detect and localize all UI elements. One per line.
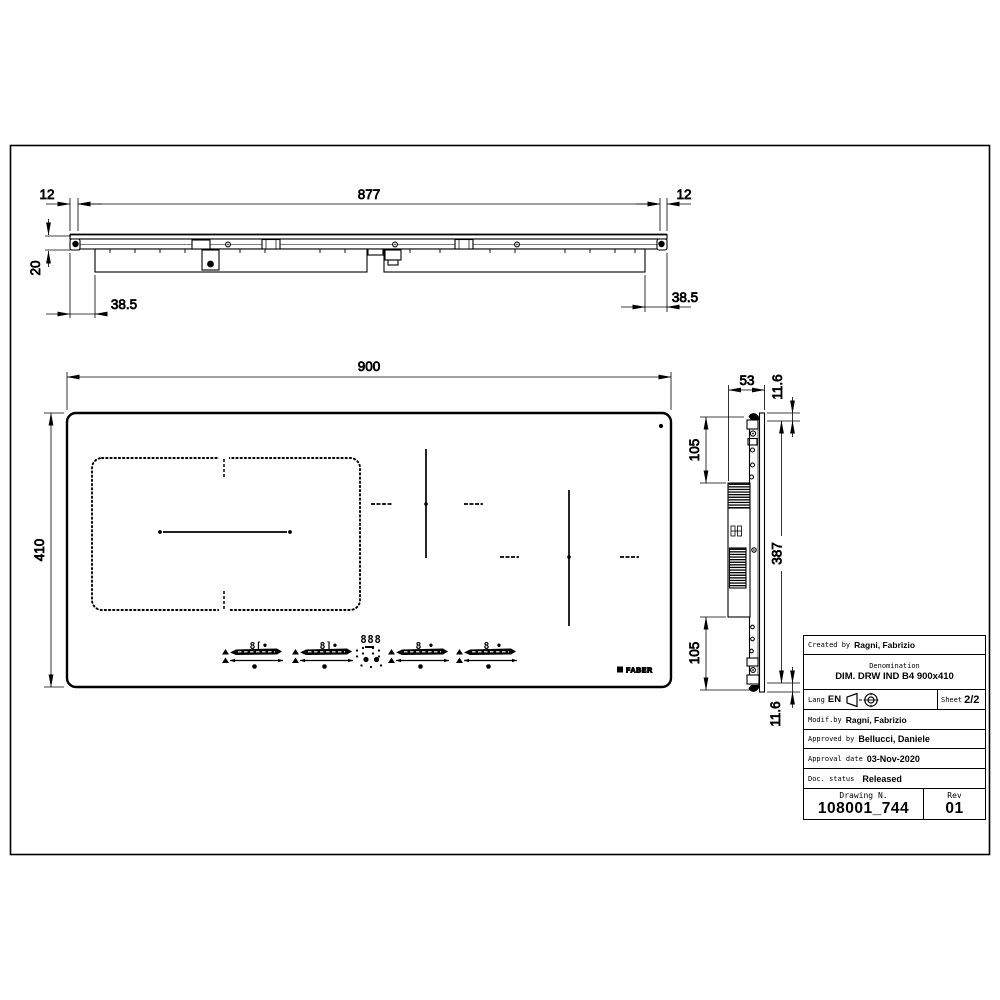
created-by-value: Ragni, Fabrizio	[854, 640, 915, 650]
created-by-label: Created by	[808, 641, 850, 649]
title-row-lang-sheet: Lang EN Sheet 2/2	[804, 689, 985, 709]
timer-display: 888	[360, 634, 381, 646]
side-view	[728, 413, 765, 692]
sheet-value: 2/2	[964, 694, 979, 706]
dim-plan-height: 410	[32, 539, 47, 562]
title-row-drawing-number: Drawing N. 108001_744 Rev 01	[804, 788, 985, 819]
title-row-denomination: Denomination DIM. DRW IND B4 900x410	[804, 654, 985, 689]
power-indicator-dot	[659, 424, 663, 428]
dim-front-glass-width: 877	[358, 187, 381, 202]
drawing-number-value: 108001_744	[818, 800, 909, 818]
front-view	[70, 235, 667, 273]
projection-symbol-icon	[844, 692, 884, 708]
title-row-doc-status: Doc. status Released	[804, 768, 985, 788]
cad-drawing: 12 877 12 20 38.5 38.5	[0, 0, 1000, 1000]
denomination-label: Denomination	[869, 662, 920, 670]
approval-date-value: 03-Nov-2020	[867, 754, 920, 764]
lang-cell: Lang EN	[804, 690, 937, 709]
rev-label: Rev	[947, 791, 961, 800]
dim-front-left-overhang: 12	[39, 187, 54, 202]
denomination-value: DIM. DRW IND B4 900x410	[835, 671, 954, 682]
dim-side-bottom-inset: 105	[687, 642, 702, 665]
sheet-cell: Sheet 2/2	[937, 690, 985, 709]
title-block: Created by Ragni, Fabrizio Denomination …	[803, 635, 986, 820]
drawing-number-cell: Drawing N. 108001_744	[804, 789, 924, 819]
dim-side-bottom-glass: 11.6	[768, 701, 783, 726]
approved-by-value: Bellucci, Daniele	[858, 734, 930, 744]
doc-status-label: Doc. status	[808, 775, 854, 783]
dim-side-top-glass: 11.6	[770, 374, 785, 399]
dim-front-right-overhang: 12	[676, 187, 691, 202]
dim-side-top-inset: 105	[687, 439, 702, 462]
drawing-number-label: Drawing N.	[839, 791, 887, 800]
faber-logo-text: FABER	[626, 668, 653, 675]
dim-side-body-height: 387	[770, 542, 785, 565]
sheet-label: Sheet	[941, 696, 962, 704]
lang-label: Lang	[808, 696, 825, 704]
dim-front-right-inset: 38.5	[672, 290, 698, 305]
title-row-modif-by: Modif.by Ragni, Fabrizio	[804, 709, 985, 729]
dim-front-left-inset: 38.5	[111, 297, 137, 312]
modif-by-value: Ragni, Fabrizio	[846, 715, 907, 725]
lang-value: EN	[828, 694, 841, 705]
dim-front-height: 20	[28, 260, 43, 275]
rev-cell: Rev 01	[924, 789, 985, 819]
approval-date-label: Approval date	[808, 755, 863, 763]
title-row-approval-date: Approval date 03-Nov-2020	[804, 748, 985, 768]
doc-status-value: Released	[862, 774, 902, 784]
modif-by-label: Modif.by	[808, 716, 842, 724]
title-row-created-by: Created by Ragni, Fabrizio	[804, 636, 985, 654]
dim-side-depth: 53	[739, 373, 754, 388]
drawing-sheet: 12 877 12 20 38.5 38.5	[0, 0, 1000, 1000]
dim-plan-width: 900	[358, 359, 381, 374]
title-row-approved-by: Approved by Bellucci, Daniele	[804, 729, 985, 748]
rev-value: 01	[945, 800, 963, 818]
approved-by-label: Approved by	[808, 735, 854, 743]
